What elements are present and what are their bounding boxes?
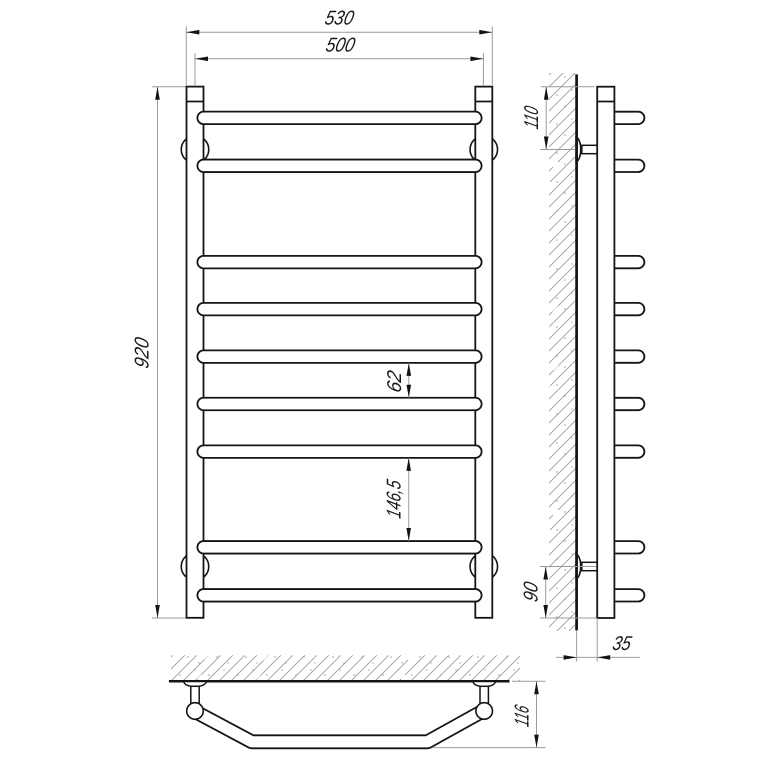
svg-text:920: 920 xyxy=(132,335,154,371)
svg-text:146,5: 146,5 xyxy=(384,477,406,520)
svg-text:530: 530 xyxy=(323,8,357,30)
svg-text:500: 500 xyxy=(324,35,358,57)
